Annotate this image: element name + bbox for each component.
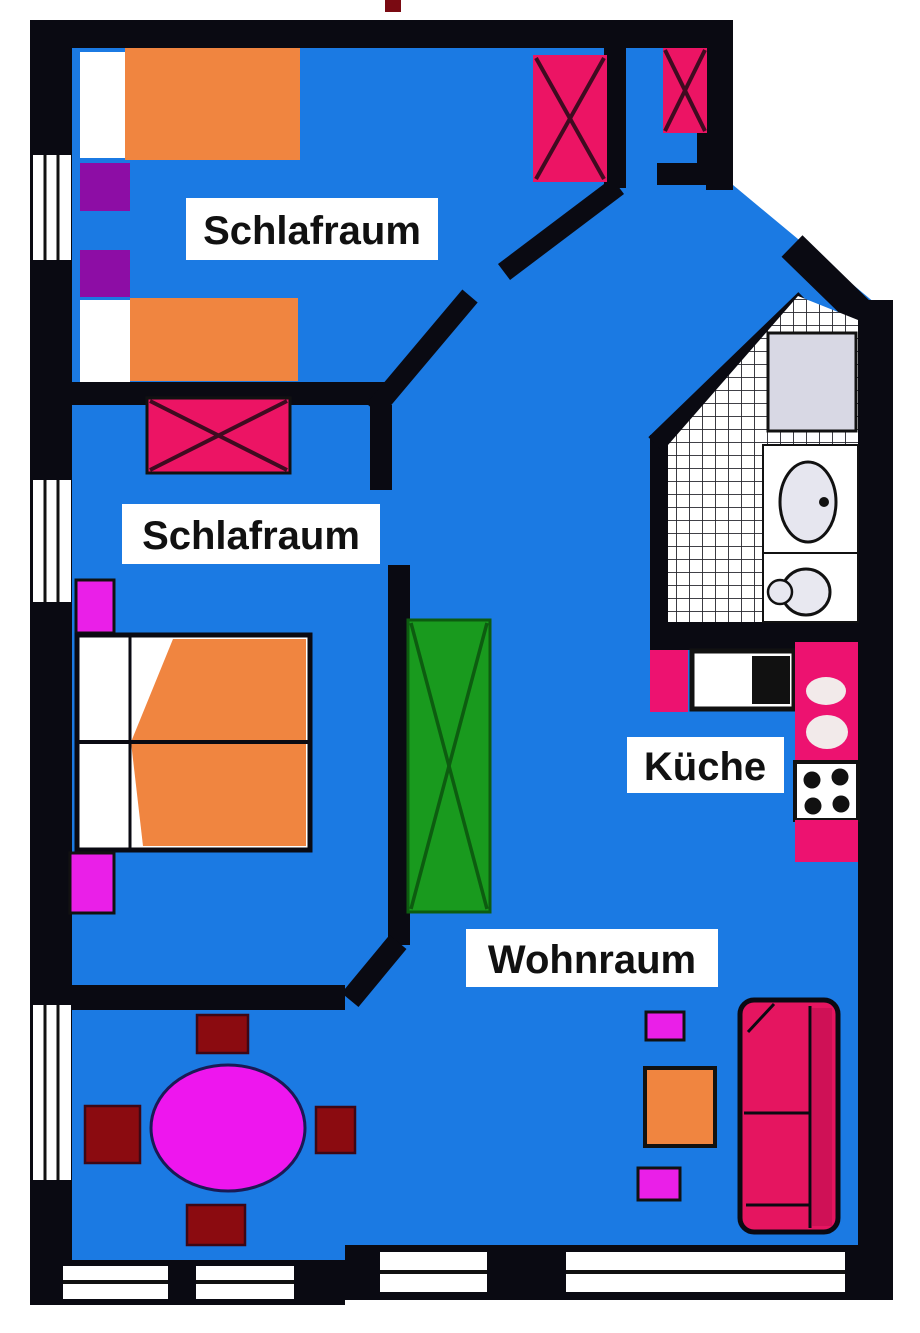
window-bottom-2	[196, 1266, 294, 1299]
nightstand-purple-1	[80, 163, 130, 211]
floor-plan-canvas: Schlafraum Schlafraum Küche Wohnraum	[0, 0, 920, 1333]
wardrobe-pink-1	[533, 55, 607, 182]
kitchen-basin-1	[806, 677, 846, 705]
stove-burner-2	[832, 769, 849, 786]
label-living-room: Wohnraum	[466, 929, 718, 987]
window-bottom-4	[566, 1252, 845, 1292]
chair-top	[197, 1015, 248, 1053]
sofa	[740, 1000, 838, 1232]
toilet-cistern	[768, 580, 792, 604]
bed1-pillow	[80, 52, 125, 158]
wall-right	[858, 300, 893, 1300]
nightstand-purple-2	[80, 250, 130, 297]
label-living-room-text: Wohnraum	[488, 938, 696, 982]
nightstand-magenta-1	[76, 580, 114, 633]
shower	[768, 333, 856, 431]
bed2-pillow	[80, 300, 130, 382]
floor-plan: Schlafraum Schlafraum Küche Wohnraum	[0, 0, 920, 1333]
window-bedroom2	[33, 480, 71, 602]
wall-entry-niche-v	[697, 128, 713, 168]
chair-bottom	[187, 1205, 245, 1245]
top-edge-mark	[385, 0, 401, 12]
kitchen-counter-c	[795, 820, 858, 862]
kitchen-counter-a	[650, 650, 688, 712]
wardrobe-pink-2	[663, 48, 707, 133]
label-bedroom2-text: Schlafraum	[142, 514, 360, 558]
wall-bedroom2-door-stub	[370, 405, 392, 490]
washbasin-tap	[819, 497, 829, 507]
label-kitchen: Küche	[627, 737, 784, 793]
side-stool-1	[646, 1012, 684, 1040]
bed1	[125, 48, 300, 160]
side-stool-2	[638, 1168, 680, 1200]
chair-left	[85, 1106, 140, 1163]
stove-burner-1	[804, 772, 821, 789]
window-bottom-3	[380, 1252, 487, 1292]
wall-bathroom-left	[650, 435, 668, 650]
stove-burner-3	[805, 798, 822, 815]
wall-top	[30, 20, 733, 48]
chair-right	[316, 1107, 355, 1153]
bed2	[130, 298, 298, 381]
wall-bedroom2-bottom	[30, 985, 345, 1010]
label-bedroom1-text: Schlafraum	[203, 209, 421, 253]
side-table-orange	[645, 1068, 715, 1146]
double-bed	[77, 635, 310, 850]
dining-table	[151, 1065, 305, 1191]
kitchen-sink-drainer	[752, 656, 790, 704]
label-kitchen-text: Küche	[644, 745, 766, 789]
stove-burner-4	[833, 796, 850, 813]
label-bedroom1: Schlafraum	[186, 198, 438, 260]
wall-hall-vertical	[604, 30, 626, 188]
wardrobe-green	[408, 620, 490, 912]
window-living-left	[33, 1005, 71, 1180]
label-bedroom2: Schlafraum	[122, 504, 380, 564]
stove	[795, 762, 858, 820]
window-bedroom1	[33, 155, 71, 260]
nightstand-magenta-2	[70, 853, 114, 913]
kitchen-basin-2	[806, 715, 848, 749]
wardrobe-pink-3	[147, 398, 290, 473]
window-bottom-1	[63, 1266, 168, 1299]
